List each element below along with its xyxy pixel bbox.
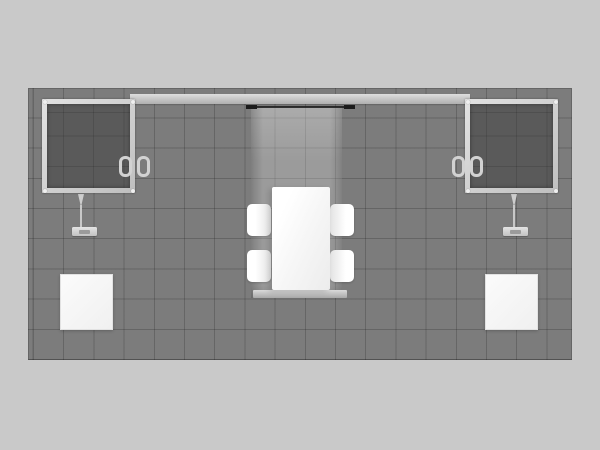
chair bbox=[330, 250, 354, 282]
corner-screw bbox=[43, 189, 47, 193]
chair bbox=[247, 204, 271, 236]
monitor-stand-pole bbox=[80, 205, 82, 228]
booth-render bbox=[0, 0, 600, 450]
corner-screw bbox=[554, 189, 558, 193]
corner-screw bbox=[131, 100, 135, 104]
corner-screw bbox=[131, 189, 135, 193]
tower-base-bar bbox=[253, 290, 347, 298]
monitor-stand-pole bbox=[513, 205, 515, 228]
screen-panel bbox=[47, 104, 130, 188]
mount-bracket bbox=[119, 156, 132, 177]
flat-screen-left bbox=[42, 99, 135, 193]
conference-table bbox=[272, 187, 330, 290]
stand-base-detail bbox=[79, 230, 90, 234]
header-beam bbox=[130, 94, 470, 104]
chair bbox=[247, 250, 271, 282]
pedestal-cube-left bbox=[60, 274, 113, 330]
rail-end-cap bbox=[344, 105, 355, 109]
monitor-stand-base bbox=[72, 227, 97, 236]
rail-end-cap bbox=[246, 105, 257, 109]
corner-screw bbox=[43, 100, 47, 104]
monitor-stand-base bbox=[503, 227, 528, 236]
corner-screw bbox=[554, 100, 558, 104]
corner-screw bbox=[466, 189, 470, 193]
corner-screw bbox=[466, 100, 470, 104]
flat-screen-right bbox=[465, 99, 558, 193]
chair bbox=[330, 204, 354, 236]
mount-bracket bbox=[470, 156, 483, 177]
screen-panel bbox=[470, 104, 553, 188]
mount-bracket bbox=[452, 156, 465, 177]
monitor-mount-rail bbox=[250, 106, 350, 108]
mount-bracket bbox=[137, 156, 150, 177]
stand-base-detail bbox=[510, 230, 521, 234]
pedestal-cube-right bbox=[485, 274, 538, 330]
